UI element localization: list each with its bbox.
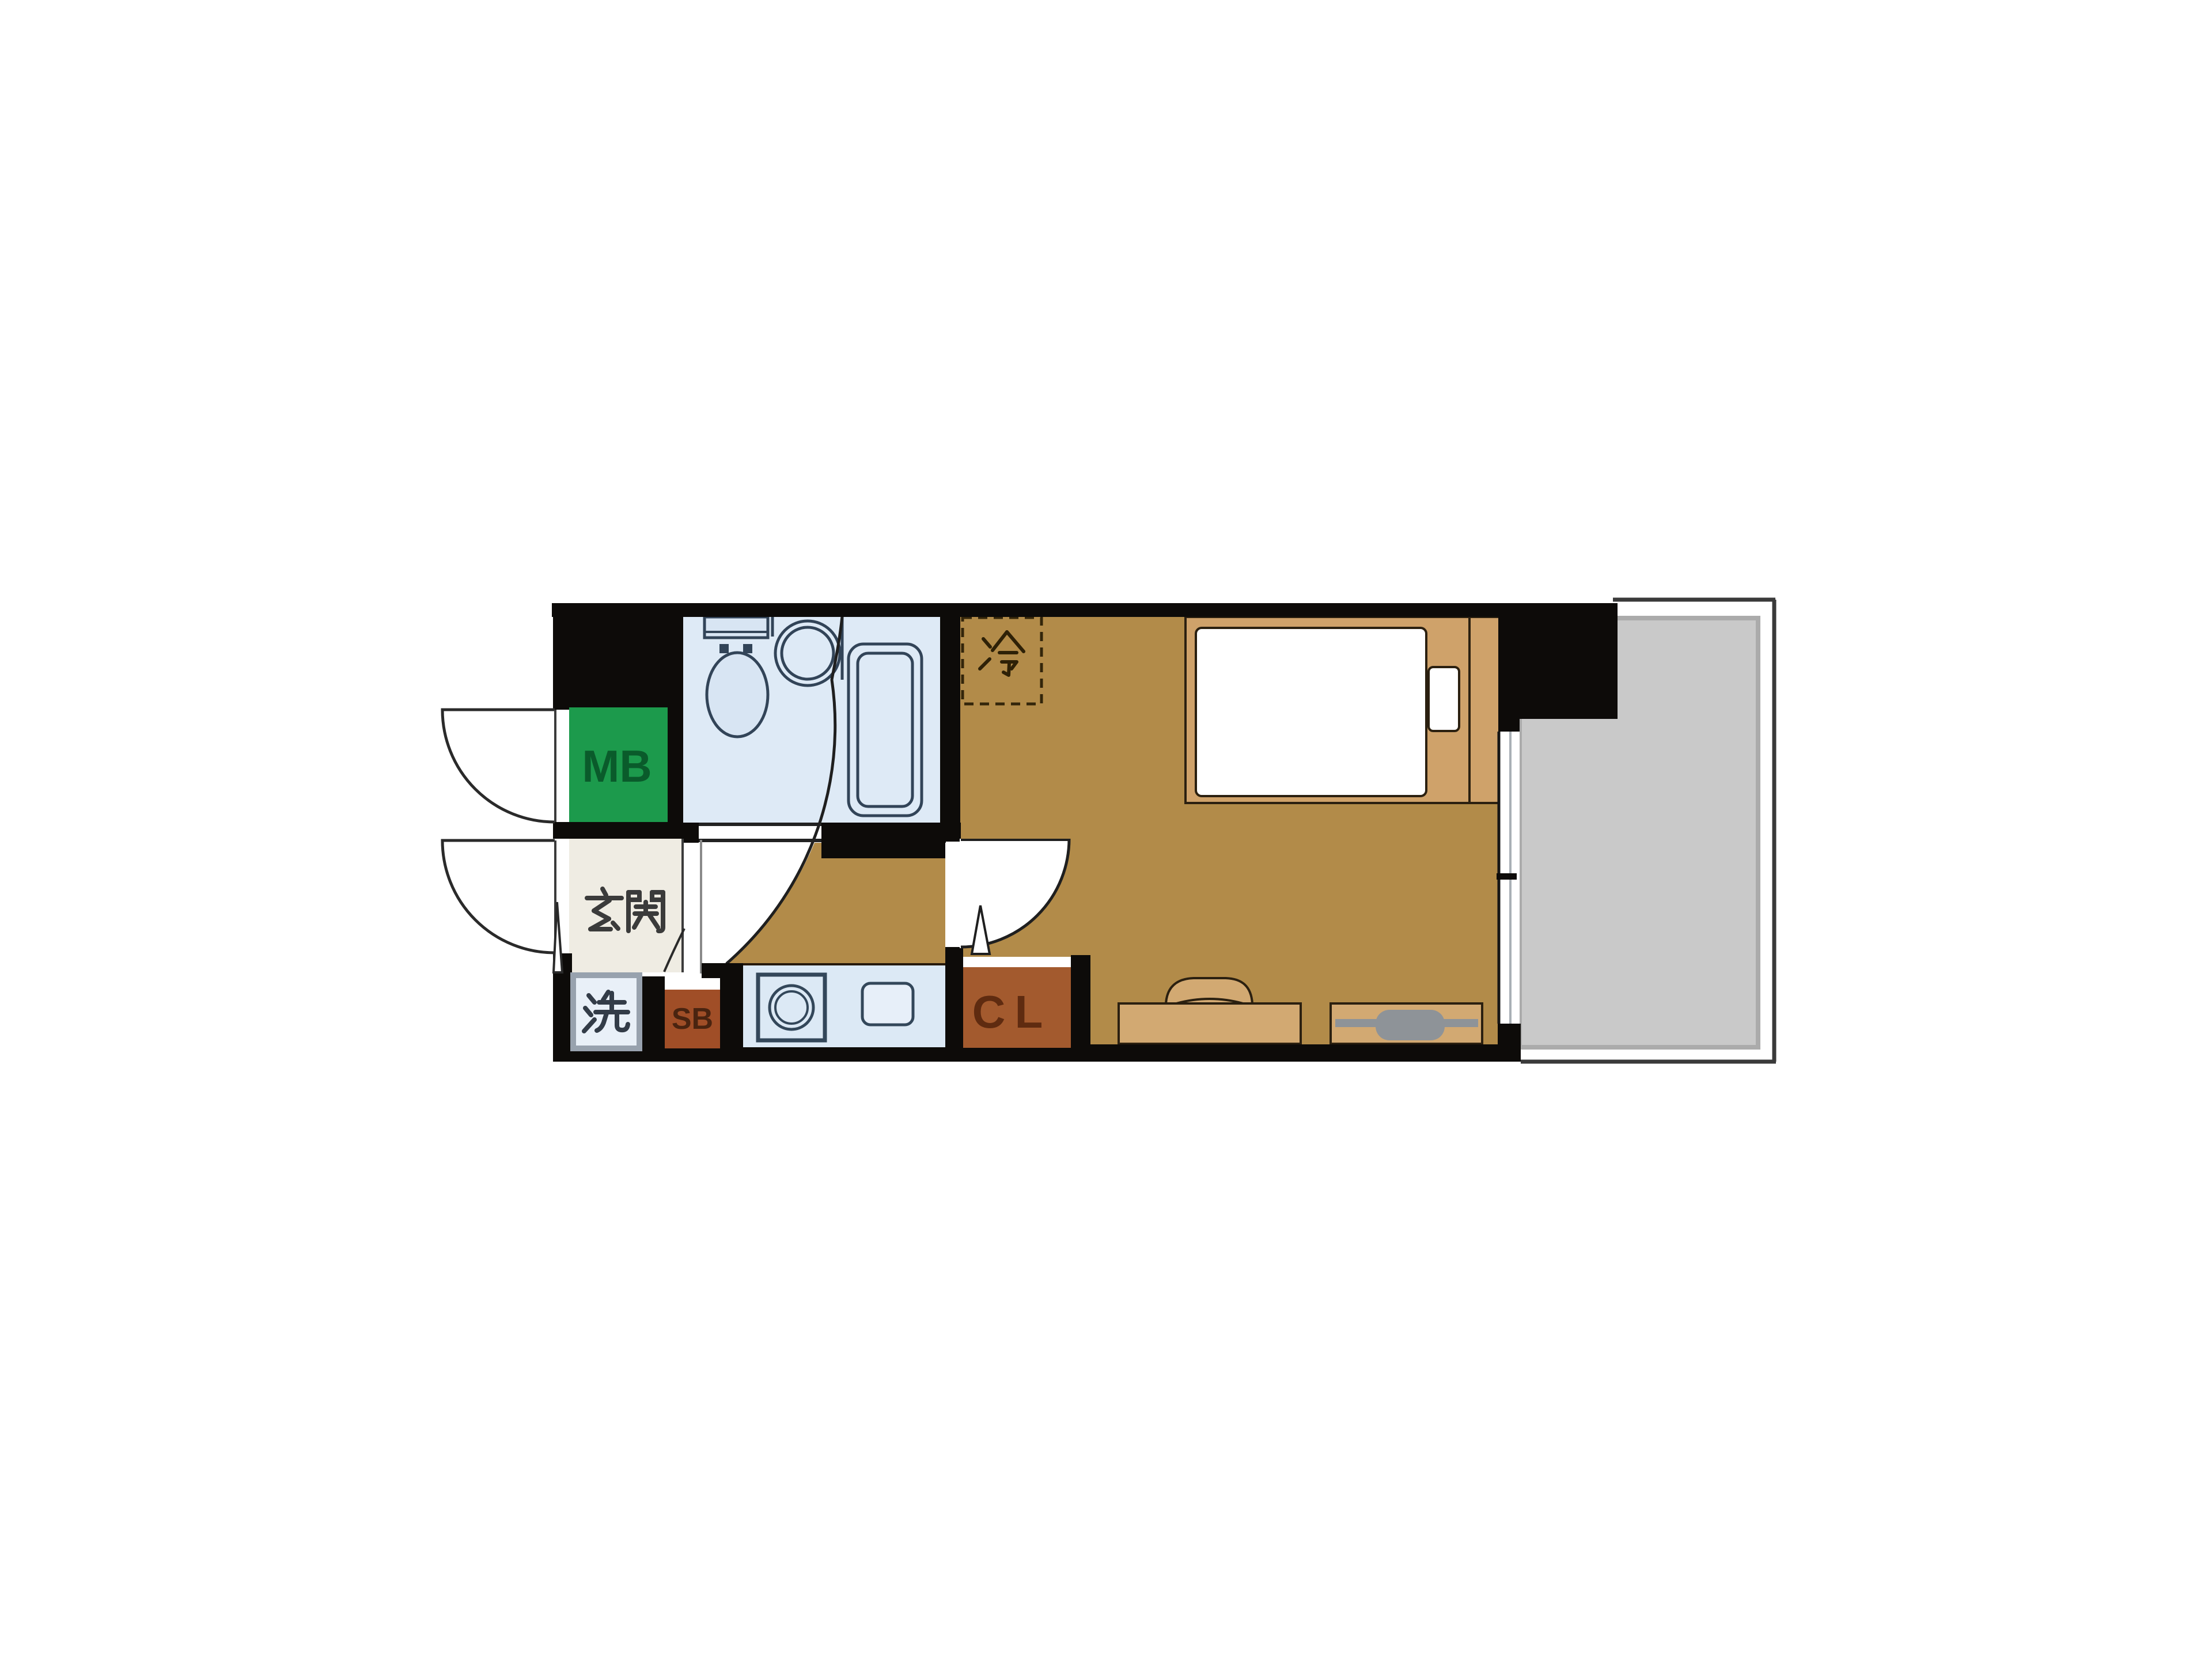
svg-text:MB: MB: [582, 741, 652, 791]
svg-text:SB: SB: [672, 1002, 713, 1036]
svg-text:CL: CL: [972, 986, 1052, 1037]
